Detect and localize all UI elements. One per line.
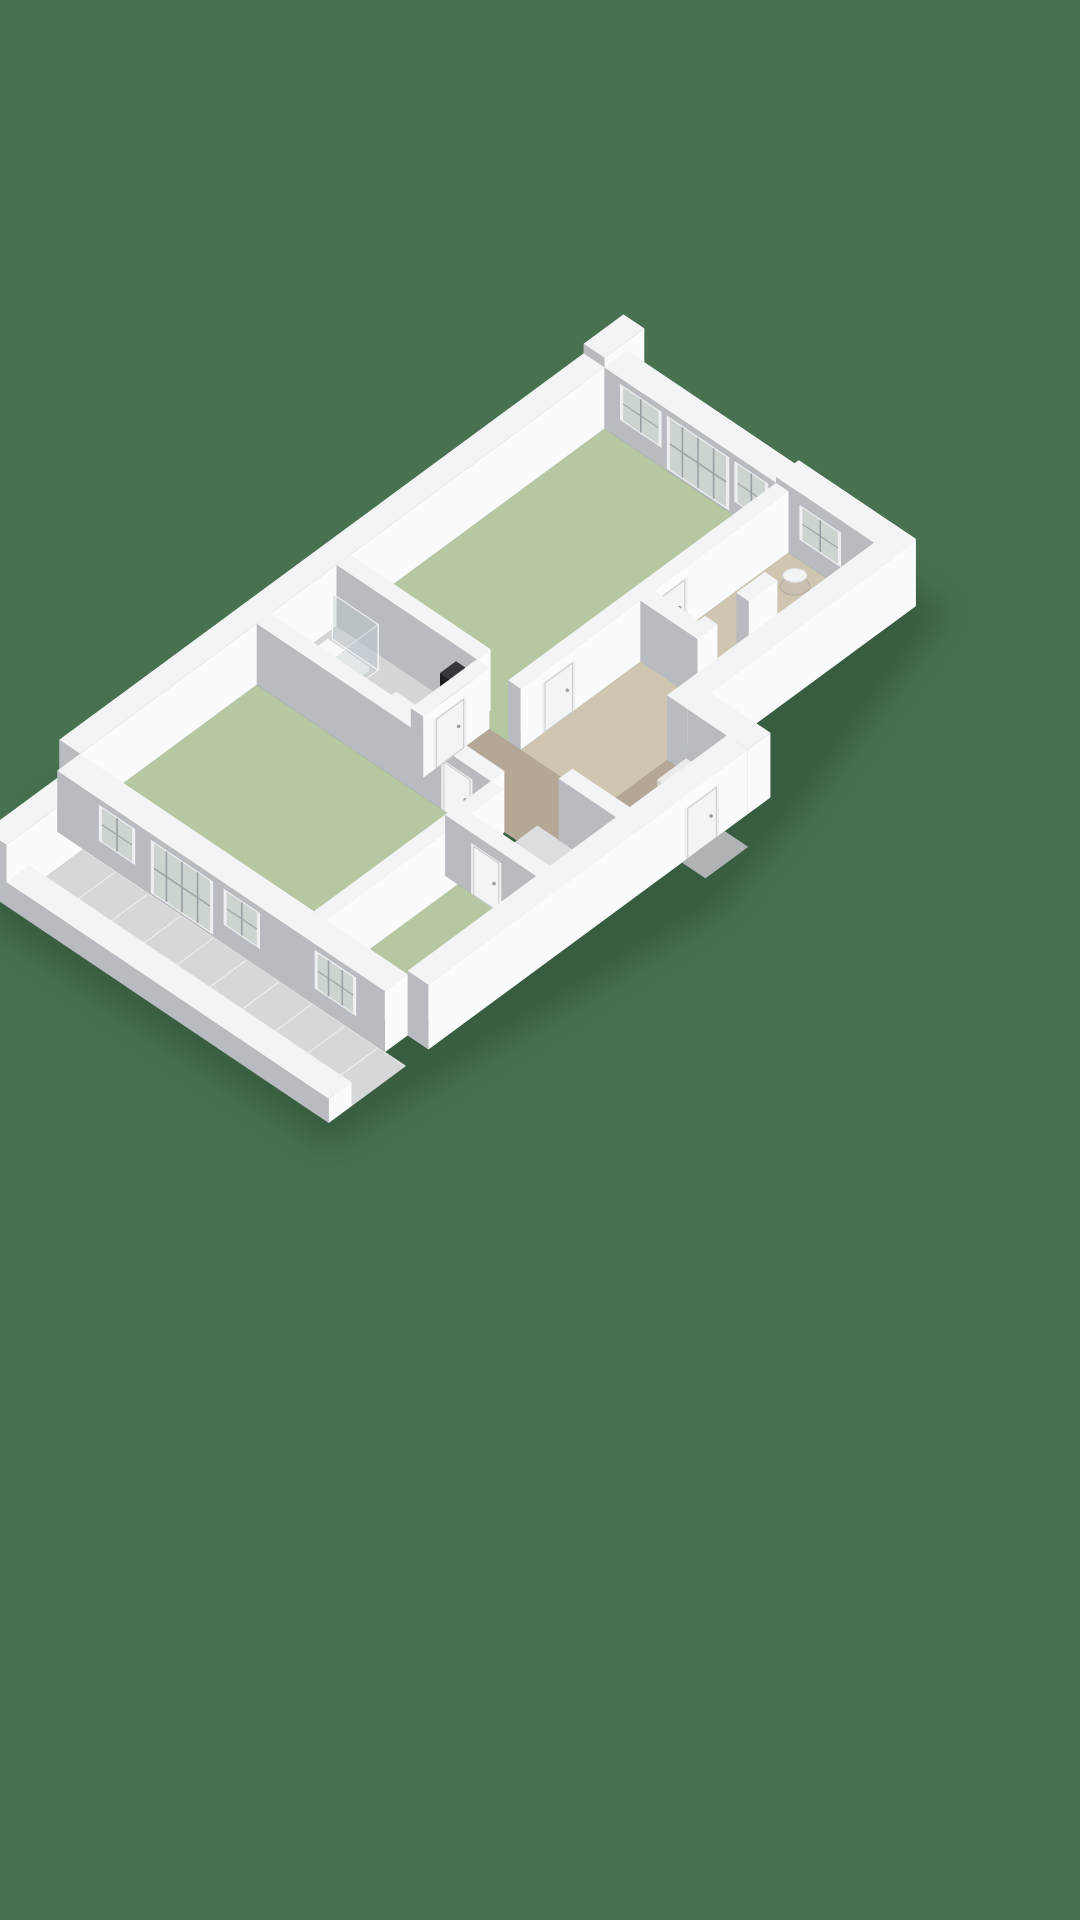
wc-basin-top	[783, 568, 807, 582]
floorplan-3d-render	[0, 0, 1080, 1920]
floorplan-stage	[0, 0, 1080, 1920]
